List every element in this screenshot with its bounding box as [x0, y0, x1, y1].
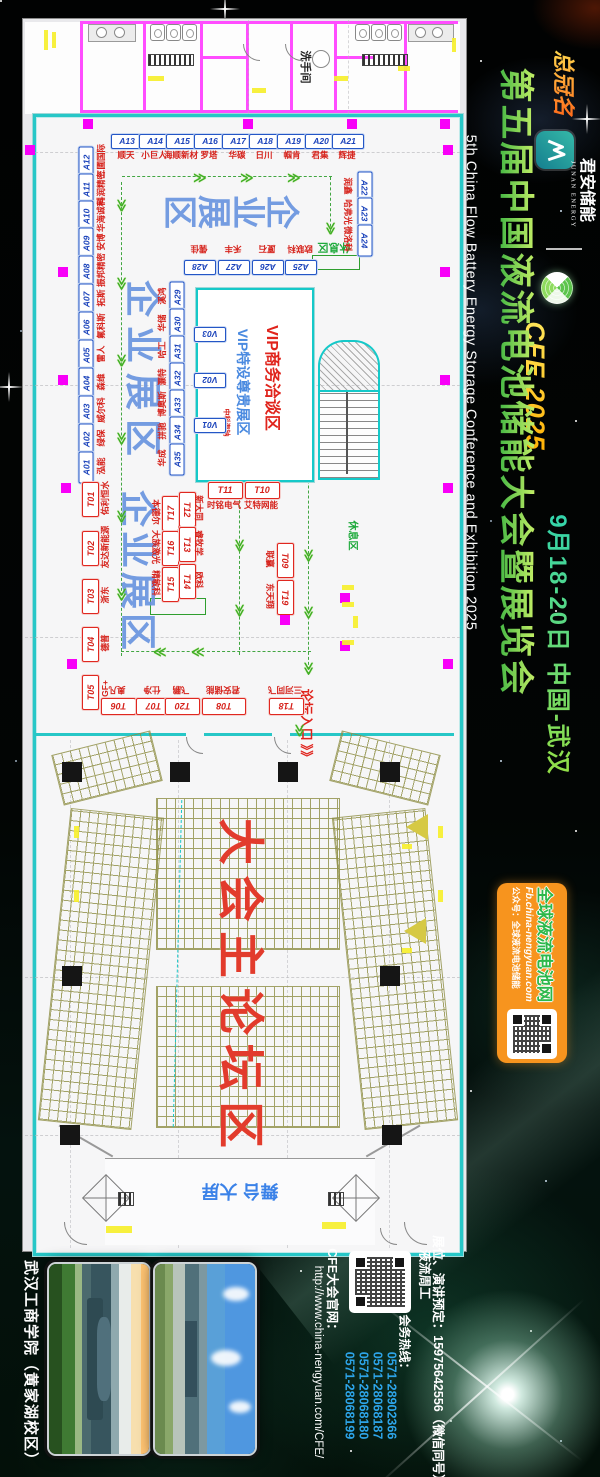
event-poster: 洗手间 休息区 休息区 VIP商务洽谈区 [0, 0, 600, 1477]
venue-photo-1 [47, 1262, 151, 1456]
footer-qr-code [349, 1251, 411, 1313]
footer: 武汉工商学院（黄家湖校区） CFE大会官网： http://www.china-… [0, 0, 600, 1477]
hotline-number: 0571-28068180 [357, 1340, 370, 1452]
website-url: http://www.china-nengyuan.com/CFE/ [311, 1248, 323, 1476]
website-label: CFE大会官网： [325, 1237, 339, 1347]
hotline-number: 0571-28068187 [371, 1340, 384, 1452]
hotline-label: 会务热线： [399, 1313, 412, 1377]
hotline-number: 0571-28068199 [343, 1340, 356, 1452]
venue-photo-2 [153, 1262, 257, 1456]
venue-name: 武汉工商学院（黄家湖校区） [21, 1254, 41, 1474]
hotline-number: 0571-28902366 [385, 1340, 398, 1452]
booking-line: 展位、演讲预定：15975642556（微信同号） [431, 1245, 445, 1477]
contact-person: 液流周工 [418, 1249, 431, 1301]
